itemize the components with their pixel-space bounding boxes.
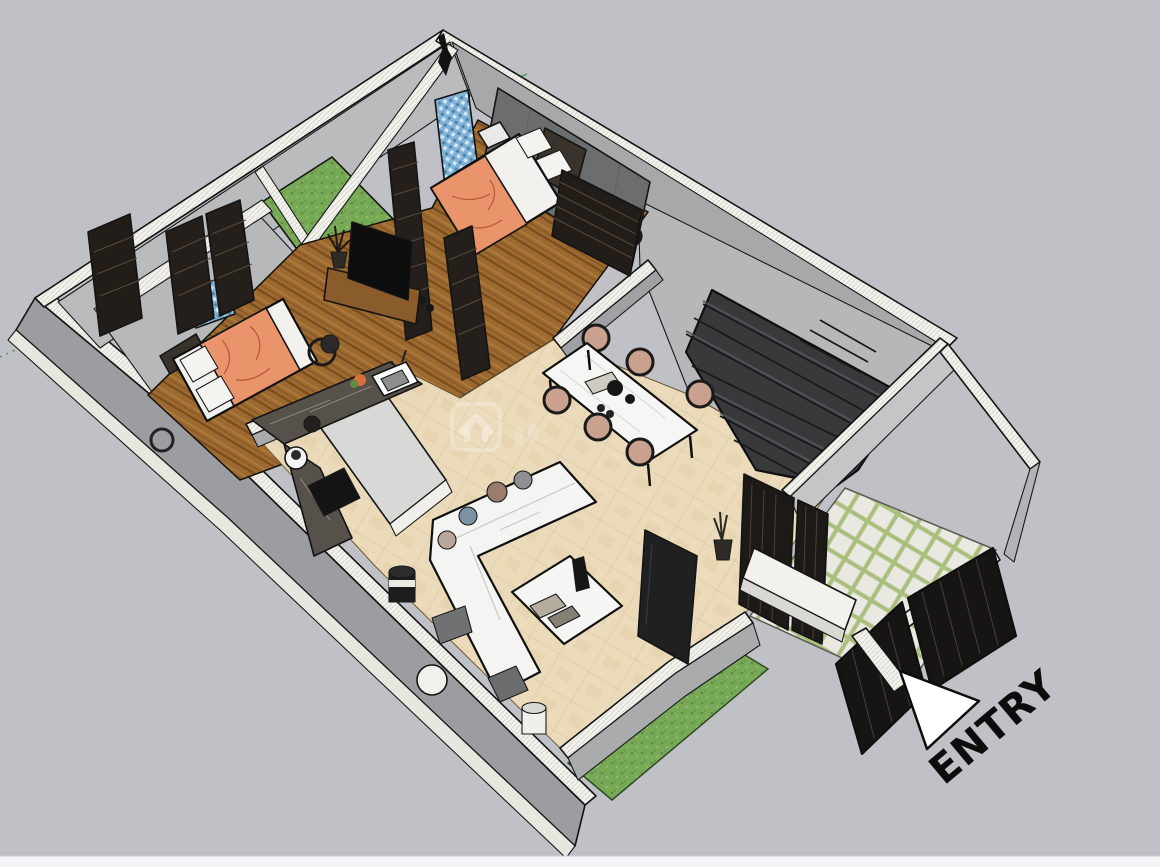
side-lamp	[522, 703, 546, 735]
house-chevron-watermark	[452, 404, 500, 450]
round-stool	[417, 665, 447, 695]
counter-jar	[304, 416, 320, 432]
floor-plan-render: ENTRY	[0, 0, 1160, 867]
bottom-bar	[0, 856, 1160, 867]
table-centerpiece	[607, 380, 623, 396]
side-lamp	[389, 566, 415, 602]
sofa-pillow	[487, 482, 507, 502]
